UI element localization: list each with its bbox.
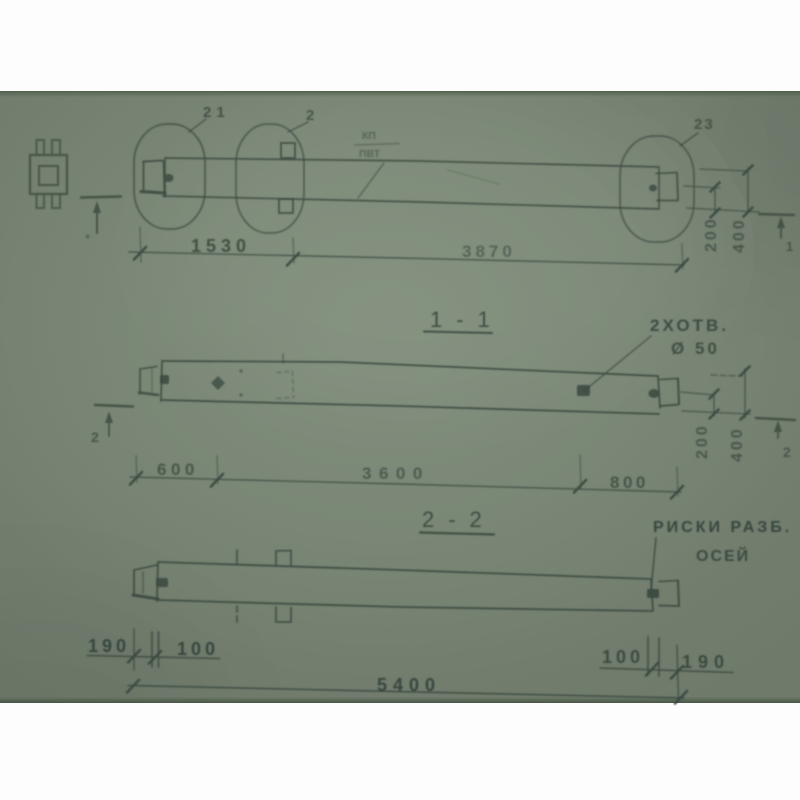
svg-text:100: 100 bbox=[177, 639, 219, 659]
svg-text:3870: 3870 bbox=[462, 242, 516, 261]
svg-text:5400: 5400 bbox=[377, 675, 441, 695]
svg-text:200: 200 bbox=[694, 423, 711, 459]
svg-text:21: 21 bbox=[203, 104, 230, 121]
svg-text:ОСЕЙ: ОСЕЙ bbox=[696, 546, 750, 565]
svg-text:23: 23 bbox=[694, 116, 715, 133]
svg-text:2: 2 bbox=[91, 429, 99, 445]
svg-text:200: 200 bbox=[703, 216, 720, 252]
svg-text:1: 1 bbox=[786, 239, 793, 254]
svg-text:190: 190 bbox=[88, 636, 130, 656]
svg-text:400: 400 bbox=[729, 426, 746, 462]
svg-text:190: 190 bbox=[682, 652, 730, 672]
svg-text:3600: 3600 bbox=[362, 464, 430, 483]
svg-text:ПВТ: ПВТ bbox=[359, 148, 381, 160]
svg-text:400: 400 bbox=[731, 217, 748, 253]
svg-text:1530: 1530 bbox=[191, 236, 251, 256]
svg-text:2-2: 2-2 bbox=[422, 507, 496, 532]
svg-text:600: 600 bbox=[157, 460, 199, 479]
svg-text:1-1: 1-1 bbox=[430, 307, 504, 332]
svg-text:800: 800 bbox=[610, 473, 649, 492]
svg-text:2ХОТВ.: 2ХОТВ. bbox=[650, 316, 729, 335]
svg-text:2: 2 bbox=[783, 444, 791, 460]
svg-text:2: 2 bbox=[306, 107, 314, 124]
svg-text:РИСКИ РАЗБ.: РИСКИ РАЗБ. bbox=[653, 519, 792, 536]
svg-text:100: 100 bbox=[602, 647, 644, 667]
svg-text:Ø 50: Ø 50 bbox=[671, 339, 720, 358]
svg-text:КП: КП bbox=[362, 130, 376, 142]
